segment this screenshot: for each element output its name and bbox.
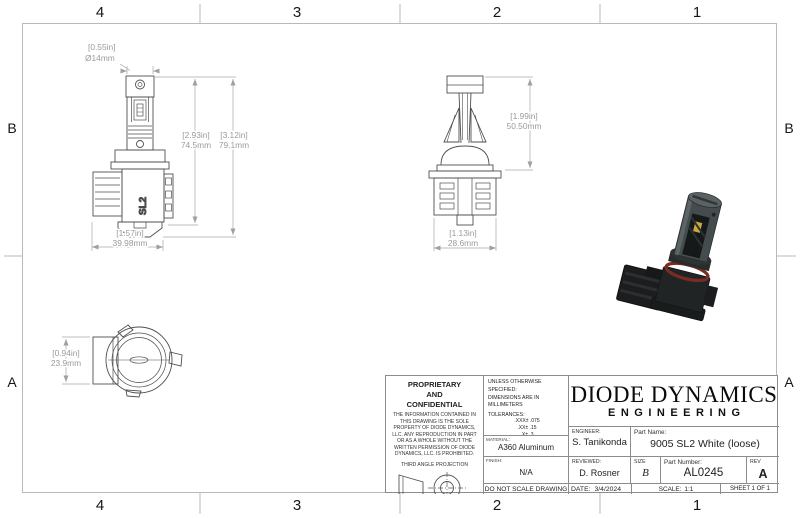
- dim-side-width-in: [1.13in]: [449, 228, 476, 238]
- zone-label-bottom-3: 3: [286, 497, 308, 514]
- zone-label-bottom-1: 1: [686, 497, 708, 514]
- engineer-cell: ENGINEER: S. Tanikonda: [569, 427, 631, 457]
- rev-cell: REV A: [747, 457, 779, 484]
- do-not-scale-cell: DO NOT SCALE DRAWING: [484, 484, 569, 494]
- zone-label-bottom-4: 4: [89, 497, 111, 514]
- zone-label-top-4: 4: [89, 4, 111, 21]
- specs-cell: UNLESS OTHERWISE SPECIFIED: DIMENSIONS A…: [484, 376, 569, 436]
- dim-front-h2-mm: 79.1mm: [219, 140, 249, 150]
- isometric-render: [616, 179, 739, 323]
- finish-label: FINISH:: [484, 457, 568, 463]
- zone-label-right-b: B: [778, 120, 800, 136]
- part-number-cell: Part Number: AL0245: [661, 457, 747, 484]
- company-division: ENGINEERING: [569, 407, 779, 419]
- title-block: PROPRIETARY AND CONFIDENTIAL THE INFORMA…: [385, 375, 778, 493]
- proprietary-heading-line2: AND: [386, 390, 483, 400]
- dim-front-diameter-mm: Ø14mm: [85, 53, 115, 63]
- zone-label-bottom-2: 2: [486, 497, 508, 514]
- material-value: A360 Aluminum: [484, 443, 568, 452]
- third-angle-projection-icon: [395, 470, 475, 494]
- zone-label-top-1: 1: [686, 4, 708, 21]
- date-label: DATE:: [571, 486, 591, 493]
- reviewed-cell: REVIEWED: D. Rosner: [569, 457, 631, 484]
- front-view-dimensions: [92, 64, 236, 251]
- date-value: 3/4/2024: [595, 486, 621, 493]
- sheet-value: SHEET 1 OF 1: [730, 486, 770, 492]
- size-label: SIZE: [631, 457, 660, 465]
- dim-top-height-in: [0.94in]: [52, 348, 79, 358]
- scale-cell: SCALE: 1:1: [632, 484, 721, 494]
- part-name-label: Part Name:: [631, 427, 779, 436]
- third-angle-projection-label: THIRD ANGLE PROJECTION: [386, 462, 483, 468]
- proprietary-heading-line1: PROPRIETARY: [386, 380, 483, 390]
- dim-side-height-mm: 50.50mm: [507, 121, 542, 131]
- dim-front-diameter-in: [0.55in]: [88, 42, 115, 52]
- proprietary-heading-line3: CONFIDENTIAL: [386, 400, 483, 410]
- sl2-logo-text: SL2: [138, 196, 149, 215]
- rev-value: A: [747, 467, 779, 481]
- company-name: DIODE DYNAMICS: [569, 382, 779, 408]
- zone-label-top-2: 2: [486, 4, 508, 21]
- dim-front-width-in: [1.57in]: [116, 228, 143, 238]
- dim-front-h1-mm: 74.5mm: [181, 140, 211, 150]
- zone-label-left-b: B: [1, 120, 23, 136]
- company-logo-cell: DIODE DYNAMICS ENGINEERING: [569, 376, 779, 427]
- dim-top-height-mm: 23.9mm: [51, 358, 81, 368]
- top-view: [93, 325, 182, 397]
- scale-label: SCALE:: [659, 486, 682, 493]
- dimensions-units-line: DIMENSIONS ARE IN MILLIMETERS: [488, 395, 566, 411]
- dim-side-height-in: [1.99in]: [510, 111, 537, 121]
- reviewed-label: REVIEWED:: [569, 457, 630, 465]
- part-number-label: Part Number:: [661, 457, 746, 466]
- dim-front-h2-in: [3.12in]: [220, 130, 247, 140]
- sheet-cell: SHEET 1 OF 1: [721, 484, 779, 494]
- proprietary-cell: PROPRIETARY AND CONFIDENTIAL THE INFORMA…: [386, 376, 484, 494]
- dim-front-width-mm: 39.98mm: [113, 238, 148, 248]
- dim-front-h1-in: [2.93in]: [182, 130, 209, 140]
- reviewed-value: D. Rosner: [569, 468, 630, 478]
- part-number-value: AL0245: [661, 467, 746, 479]
- do-not-scale-text: DO NOT SCALE DRAWING: [485, 486, 567, 493]
- zone-label-left-a: A: [1, 374, 23, 390]
- tolerance-xx: .XX± .15: [488, 425, 566, 432]
- material-cell: MATERIAL: A360 Aluminum: [484, 436, 569, 457]
- engineering-drawing-sheet: SL2 [0.55in] Ø14mm [2.93in] 74.5mm [3.12…: [0, 0, 800, 518]
- part-name-value: 9005 SL2 White (loose): [631, 438, 779, 450]
- engineer-value: S. Tanikonda: [569, 437, 630, 448]
- tolerance-xxx: .XXX± .075: [488, 418, 566, 425]
- zone-label-right-a: A: [778, 374, 800, 390]
- size-value: B: [631, 467, 660, 479]
- rev-label: REV: [747, 457, 779, 465]
- finish-cell: FINISH: N/A: [484, 457, 569, 484]
- size-cell: SIZE B: [631, 457, 661, 484]
- date-cell: DATE: 3/4/2024: [569, 484, 632, 494]
- front-view: SL2: [93, 76, 173, 237]
- material-label: MATERIAL:: [484, 436, 568, 442]
- side-view-dimensions: [434, 77, 533, 251]
- unless-otherwise-line: UNLESS OTHERWISE SPECIFIED:: [488, 379, 566, 395]
- part-name-cell: Part Name: 9005 SL2 White (loose): [631, 427, 779, 457]
- side-view: [429, 76, 501, 225]
- engineer-label: ENGINEER:: [569, 427, 630, 435]
- finish-value: N/A: [484, 468, 568, 477]
- scale-value: 1:1: [684, 486, 693, 493]
- zone-label-top-3: 3: [286, 4, 308, 21]
- proprietary-body-text: THE INFORMATION CONTAINED IN THIS DRAWIN…: [386, 412, 483, 458]
- dim-side-width-mm: 28.6mm: [448, 238, 478, 248]
